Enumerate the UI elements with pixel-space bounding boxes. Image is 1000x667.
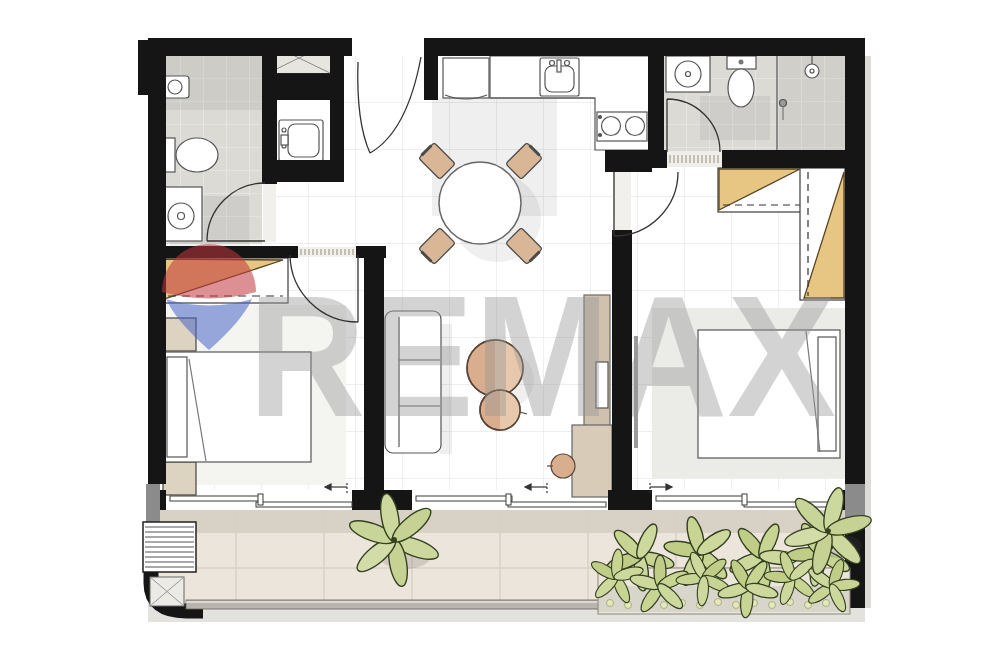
- wall: [148, 38, 166, 484]
- sliding-glass: [170, 496, 262, 501]
- stool: [551, 454, 575, 478]
- toilet-2-bowl: [728, 69, 754, 107]
- wall: [262, 56, 277, 184]
- glass-handle: [506, 494, 511, 505]
- wall: [364, 250, 384, 490]
- louver-vent: [143, 522, 196, 572]
- toilet-1-bowl: [176, 138, 218, 172]
- balcony-strip: [148, 510, 865, 533]
- wall: [148, 38, 352, 56]
- wall: [845, 38, 865, 484]
- wall: [330, 38, 344, 182]
- wall: [648, 38, 664, 152]
- wall: [612, 230, 632, 490]
- nightstand-bottom: [163, 462, 196, 495]
- door-threshold: [298, 247, 356, 257]
- wall: [424, 38, 862, 56]
- sliding-glass: [744, 502, 836, 507]
- door-threshold: [613, 172, 631, 230]
- fridge: [443, 58, 489, 98]
- sliding-glass: [508, 502, 606, 507]
- floor-plan-image: REMAX: [0, 0, 1000, 667]
- wall: [648, 150, 667, 168]
- wall: [722, 150, 845, 168]
- window-post: [608, 490, 652, 510]
- glass-handle: [742, 494, 747, 505]
- watermark-text: REMAX: [248, 260, 836, 452]
- watermark: REMAX: [248, 260, 836, 452]
- washing-machine: [160, 187, 202, 241]
- wall: [138, 40, 148, 95]
- sliding-glass: [416, 496, 512, 501]
- sliding-glass: [656, 496, 746, 501]
- wall: [605, 150, 652, 172]
- dining-table: [439, 162, 521, 244]
- glass-handle: [258, 494, 263, 505]
- door-threshold: [263, 184, 276, 242]
- wall: [424, 56, 438, 100]
- sliding-glass: [256, 502, 352, 507]
- floor-plan-page: REMAX: [0, 0, 1000, 667]
- wall-gray-segment: [146, 484, 160, 522]
- wardrobe-2-top: [718, 168, 808, 212]
- wall: [277, 160, 330, 182]
- cooktop: [597, 112, 647, 141]
- corner-x-box: [150, 577, 184, 606]
